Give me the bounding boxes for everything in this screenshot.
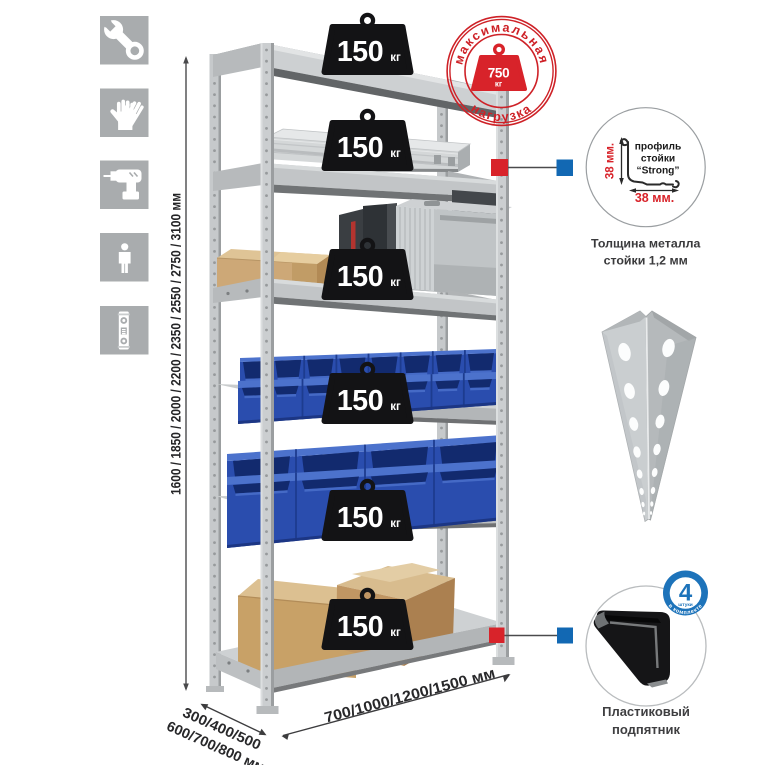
svg-text:Толщина металла: Толщина металла xyxy=(591,237,700,251)
svg-text:штуки: штуки xyxy=(678,603,693,608)
svg-text:подпятник: подпятник xyxy=(612,722,681,737)
svg-text:38 мм.: 38 мм. xyxy=(605,143,617,179)
svg-text:стойки 1,2 мм: стойки 1,2 мм xyxy=(604,254,688,268)
svg-text:38 мм.: 38 мм. xyxy=(635,191,674,205)
svg-text:“Strong”: “Strong” xyxy=(636,166,679,177)
svg-text:750: 750 xyxy=(488,66,510,81)
svg-text:профиль: профиль xyxy=(635,141,682,153)
svg-text:Пластиковый: Пластиковый xyxy=(602,704,690,719)
svg-text:кг: кг xyxy=(495,80,503,89)
svg-text:1600 / 1850 / 2000 / 2200 / 23: 1600 / 1850 / 2000 / 2200 / 2350 / 2550 … xyxy=(168,193,184,495)
svg-text:стойки: стойки xyxy=(641,154,675,165)
